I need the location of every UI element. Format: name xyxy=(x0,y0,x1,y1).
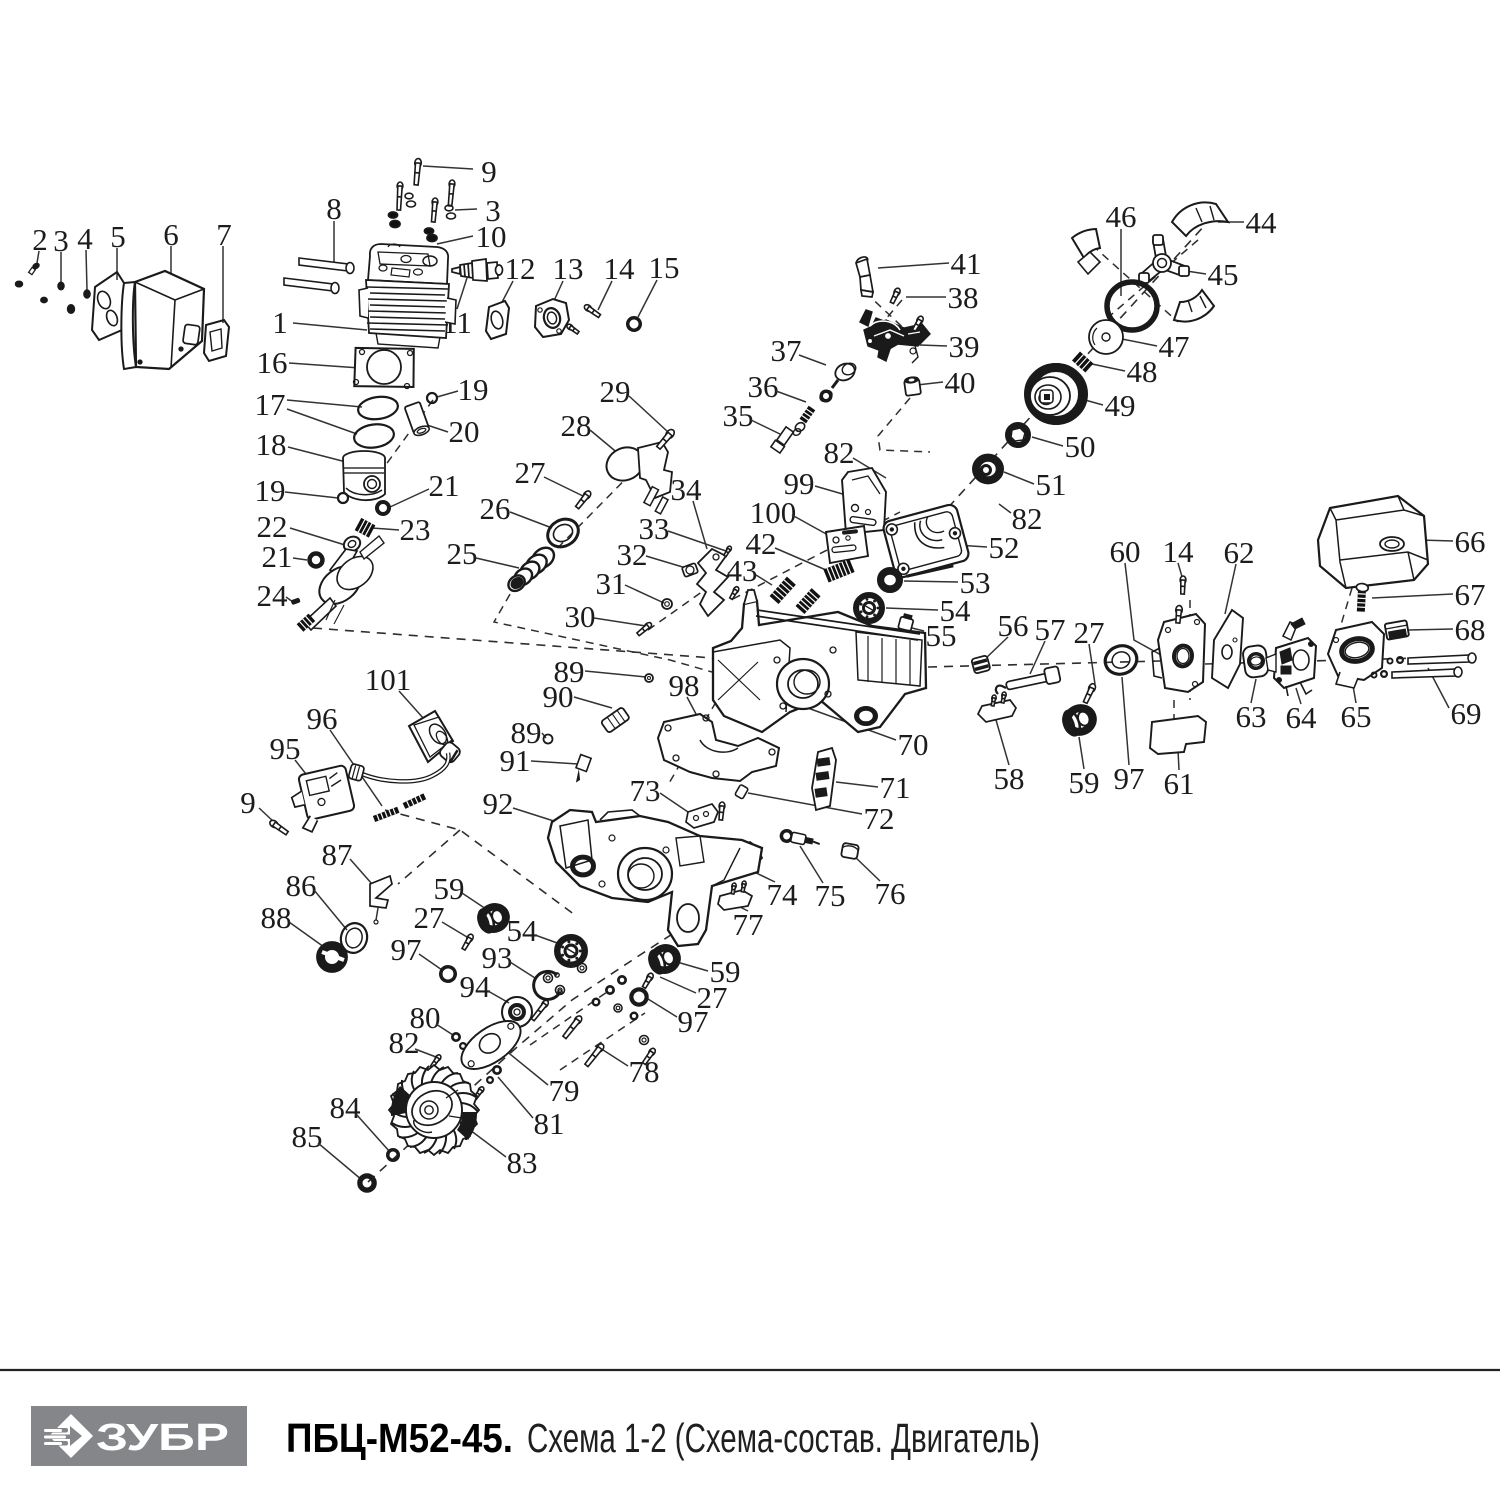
svg-text:5: 5 xyxy=(110,219,126,254)
svg-text:50: 50 xyxy=(1065,429,1096,464)
svg-text:86: 86 xyxy=(286,868,317,903)
svg-text:9: 9 xyxy=(240,785,256,820)
svg-text:34: 34 xyxy=(671,472,703,507)
svg-text:56: 56 xyxy=(998,608,1029,643)
svg-text:12: 12 xyxy=(505,251,536,286)
svg-text:73: 73 xyxy=(630,773,661,808)
svg-text:91: 91 xyxy=(500,743,531,778)
svg-text:35: 35 xyxy=(723,398,754,433)
svg-text:10: 10 xyxy=(476,219,507,254)
svg-text:40: 40 xyxy=(945,365,976,400)
svg-text:21: 21 xyxy=(262,539,293,574)
svg-text:68: 68 xyxy=(1455,612,1486,647)
svg-text:45: 45 xyxy=(1208,257,1239,292)
svg-text:81: 81 xyxy=(534,1106,565,1141)
svg-text:97: 97 xyxy=(678,1004,709,1039)
svg-text:16: 16 xyxy=(257,345,288,380)
svg-text:74: 74 xyxy=(767,877,799,912)
svg-text:19: 19 xyxy=(255,473,286,508)
svg-text:4: 4 xyxy=(77,221,93,256)
svg-text:2: 2 xyxy=(32,222,48,257)
svg-text:44: 44 xyxy=(1246,205,1278,240)
svg-text:72: 72 xyxy=(864,801,895,836)
svg-text:13: 13 xyxy=(553,251,584,286)
svg-text:28: 28 xyxy=(561,408,592,443)
svg-text:75: 75 xyxy=(815,878,846,913)
svg-text:59: 59 xyxy=(1069,765,1100,800)
svg-text:14: 14 xyxy=(604,251,636,286)
svg-text:7: 7 xyxy=(216,217,232,252)
svg-text:92: 92 xyxy=(483,786,514,821)
svg-text:98: 98 xyxy=(669,668,700,703)
svg-text:67: 67 xyxy=(1455,577,1486,612)
svg-text:Схема 1-2 (Схема-состав. Двига: Схема 1-2 (Схема-состав. Двигатель) xyxy=(527,1415,1040,1461)
svg-text:49: 49 xyxy=(1105,388,1136,423)
svg-text:37: 37 xyxy=(771,333,802,368)
svg-text:19: 19 xyxy=(458,372,489,407)
svg-text:46: 46 xyxy=(1106,199,1137,234)
svg-text:15: 15 xyxy=(649,250,680,285)
svg-text:94: 94 xyxy=(460,969,492,1004)
svg-text:76: 76 xyxy=(875,876,906,911)
svg-text:83: 83 xyxy=(507,1145,538,1180)
svg-text:17: 17 xyxy=(255,387,286,422)
svg-text:57: 57 xyxy=(1035,612,1066,647)
svg-text:87: 87 xyxy=(322,837,353,872)
svg-text:20: 20 xyxy=(449,414,480,449)
svg-text:96: 96 xyxy=(307,701,338,736)
svg-text:64: 64 xyxy=(1286,700,1318,735)
svg-text:47: 47 xyxy=(1159,329,1190,364)
svg-text:88: 88 xyxy=(261,900,292,935)
svg-text:29: 29 xyxy=(600,374,631,409)
svg-text:52: 52 xyxy=(989,530,1020,565)
svg-text:39: 39 xyxy=(949,329,980,364)
svg-text:30: 30 xyxy=(565,599,596,634)
svg-text:97: 97 xyxy=(1114,761,1145,796)
svg-text:38: 38 xyxy=(948,280,979,315)
svg-text:101: 101 xyxy=(365,662,412,697)
svg-text:27: 27 xyxy=(515,455,546,490)
svg-text:8: 8 xyxy=(326,191,342,226)
svg-text:1: 1 xyxy=(272,305,288,340)
svg-text:23: 23 xyxy=(400,512,431,547)
svg-text:62: 62 xyxy=(1224,535,1255,570)
svg-text:82: 82 xyxy=(389,1025,420,1060)
svg-text:90: 90 xyxy=(543,679,574,714)
svg-text:63: 63 xyxy=(1236,699,1267,734)
svg-text:58: 58 xyxy=(994,761,1025,796)
svg-text:25: 25 xyxy=(447,536,478,571)
svg-text:77: 77 xyxy=(733,907,764,942)
svg-text:97: 97 xyxy=(391,932,422,967)
svg-text:82: 82 xyxy=(824,435,855,470)
svg-text:26: 26 xyxy=(480,491,511,526)
svg-text:100: 100 xyxy=(750,495,797,530)
svg-text:ЗУБР: ЗУБР xyxy=(96,1417,229,1459)
svg-text:51: 51 xyxy=(1036,467,1067,502)
svg-text:9: 9 xyxy=(481,154,497,189)
svg-text:18: 18 xyxy=(256,427,287,462)
svg-text:48: 48 xyxy=(1127,354,1158,389)
svg-text:ПБЦ-М52-45.: ПБЦ-М52-45. xyxy=(286,1415,513,1461)
svg-text:69: 69 xyxy=(1451,696,1482,731)
svg-text:27: 27 xyxy=(414,900,445,935)
svg-text:41: 41 xyxy=(951,246,982,281)
svg-text:66: 66 xyxy=(1455,524,1486,559)
svg-text:84: 84 xyxy=(330,1090,362,1125)
svg-text:65: 65 xyxy=(1341,699,1372,734)
svg-text:70: 70 xyxy=(898,727,929,762)
svg-text:43: 43 xyxy=(727,553,758,588)
svg-text:55: 55 xyxy=(926,618,957,653)
svg-text:61: 61 xyxy=(1164,766,1195,801)
svg-text:71: 71 xyxy=(880,770,911,805)
svg-text:31: 31 xyxy=(596,566,627,601)
svg-text:85: 85 xyxy=(292,1119,323,1154)
svg-text:21: 21 xyxy=(429,468,460,503)
svg-text:24: 24 xyxy=(257,578,289,613)
svg-text:79: 79 xyxy=(549,1073,580,1108)
